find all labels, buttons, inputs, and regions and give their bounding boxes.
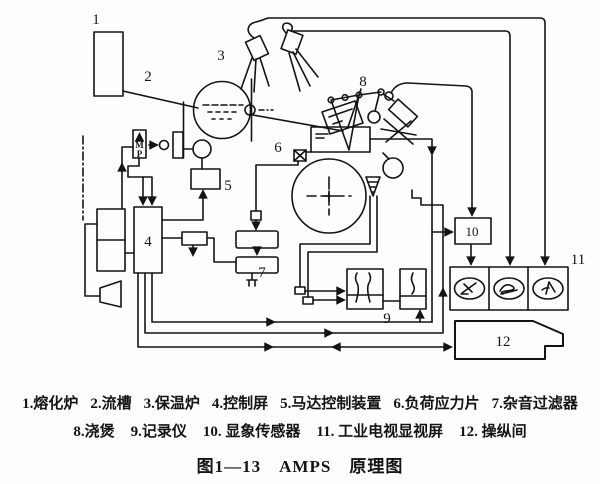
label-3: 3 bbox=[217, 48, 225, 64]
label-9: 9 bbox=[383, 311, 391, 327]
legend-item: 9.记录仪 bbox=[131, 424, 187, 440]
signal-bus-wires bbox=[138, 139, 452, 347]
label-7: 7 bbox=[258, 265, 266, 281]
label-12: 12 bbox=[496, 334, 511, 350]
legend-item: 12. 操纵间 bbox=[459, 424, 527, 440]
label-8: 8 bbox=[359, 74, 367, 90]
melting-furnace-symbol bbox=[94, 32, 123, 96]
holding-furnace-symbol bbox=[194, 79, 344, 141]
motor-control-symbol bbox=[162, 169, 220, 220]
legend-item: 6.负荷应力片 bbox=[393, 396, 479, 412]
valve-letter-p: P bbox=[137, 149, 143, 159]
label-10: 10 bbox=[466, 224, 479, 239]
legend-item: 4.控制屏 bbox=[212, 396, 268, 412]
camera-sensor-c bbox=[381, 92, 417, 144]
camera-sensor-b bbox=[281, 23, 318, 91]
label-2: 2 bbox=[144, 69, 152, 85]
legend-row-1: 1.熔化炉2.流槽3.保温炉4.控制屏5.马达控制装置6.负荷应力片7.杂音过滤… bbox=[0, 392, 600, 413]
load-cell-symbol bbox=[251, 150, 311, 229]
legend-item: 3.保温炉 bbox=[144, 396, 200, 412]
turntable-symbol bbox=[292, 153, 403, 233]
recorder-symbol bbox=[347, 269, 426, 309]
pen-trace bbox=[368, 273, 371, 302]
legend-item: 2.流槽 bbox=[90, 396, 131, 412]
idler-wheel-symbol bbox=[383, 158, 403, 178]
connector-symbol bbox=[295, 287, 305, 294]
pen-trace bbox=[356, 273, 359, 302]
plug-symbol bbox=[247, 273, 257, 286]
connector-symbol bbox=[303, 297, 313, 304]
label-6: 6 bbox=[274, 140, 282, 156]
legend-item: 8.浇煲 bbox=[73, 424, 114, 440]
figure-title: 图1—13 AMPS 原理图 bbox=[0, 452, 600, 477]
figure-page: 1 2 3 4 5 6 7 8 9 10 11 12 M P 1.熔化炉2.流槽… bbox=[0, 0, 600, 484]
hopper-symbol bbox=[100, 281, 121, 307]
label-1: 1 bbox=[92, 12, 100, 28]
legend-item: 5.马达控制装置 bbox=[280, 396, 381, 412]
flow-trough-symbol bbox=[123, 91, 198, 108]
label-4: 4 bbox=[144, 234, 152, 250]
screen-symbol bbox=[494, 278, 524, 299]
pipe-valve-assembly bbox=[122, 102, 211, 209]
screen-image bbox=[500, 285, 517, 294]
legend-item: 11. 工业电视显视屏 bbox=[316, 424, 443, 440]
junction-box-symbol bbox=[162, 232, 236, 262]
sensor-wires bbox=[295, 196, 377, 304]
ladle-symbol bbox=[311, 89, 394, 152]
amps-schematic-diagram: 1 2 3 4 5 6 7 8 9 10 11 12 M P bbox=[0, 0, 600, 390]
gauge-symbol bbox=[193, 140, 211, 158]
screen-image bbox=[542, 282, 555, 294]
legend-item: 1.熔化炉 bbox=[22, 396, 78, 412]
legend-row-2: 8.浇煲9.记录仪10. 显象传感器11. 工业电视显视屏12. 操纵间 bbox=[0, 420, 600, 441]
label-5: 5 bbox=[224, 178, 232, 194]
pen-trace bbox=[412, 273, 415, 294]
camera-sensor-a bbox=[241, 18, 269, 92]
legend-item: 10. 显象传感器 bbox=[203, 424, 301, 440]
connector-symbol bbox=[251, 211, 261, 220]
noise-filter-symbol bbox=[236, 231, 278, 286]
legend-item: 7.杂音过滤器 bbox=[492, 396, 578, 412]
label-11: 11 bbox=[571, 252, 585, 268]
tv-monitors-symbol bbox=[450, 267, 568, 310]
screen-image bbox=[461, 283, 476, 294]
